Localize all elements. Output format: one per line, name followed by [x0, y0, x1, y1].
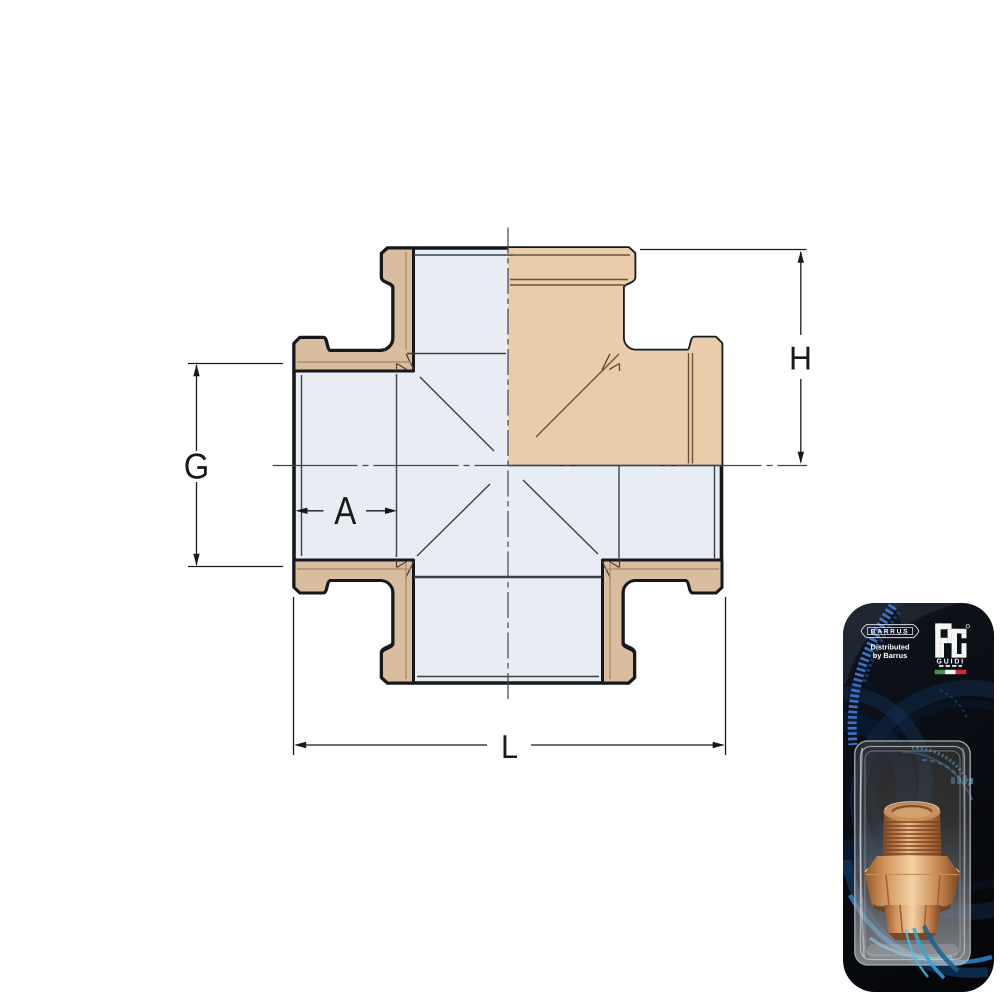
svg-text:L: L	[501, 728, 518, 765]
svg-text:G: G	[184, 446, 210, 487]
svg-text:A: A	[334, 490, 356, 533]
svg-text:H: H	[789, 340, 812, 377]
svg-text:BARRUS: BARRUS	[871, 629, 909, 636]
svg-text:GUIDI: GUIDI	[936, 659, 965, 666]
svg-text:by Barrus: by Barrus	[873, 651, 908, 660]
